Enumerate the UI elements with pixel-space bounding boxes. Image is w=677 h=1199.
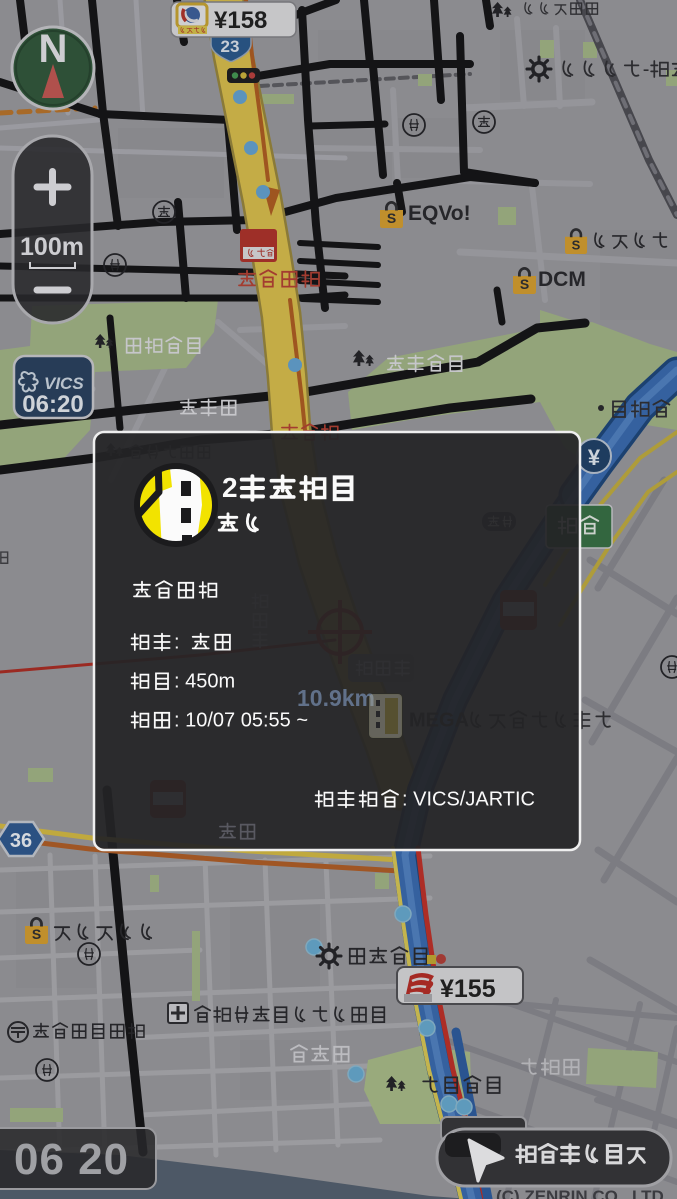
svg-text:S: S bbox=[32, 926, 41, 942]
svg-text:36: 36 bbox=[10, 830, 32, 852]
svg-text:06:20: 06:20 bbox=[22, 391, 83, 418]
svg-text:DCM: DCM bbox=[538, 268, 586, 291]
svg-text:: 450m: : 450m bbox=[174, 670, 235, 692]
svg-text:S: S bbox=[520, 276, 529, 292]
svg-text:¥: ¥ bbox=[588, 445, 601, 470]
svg-text:¥155: ¥155 bbox=[440, 975, 496, 1003]
svg-text:100m: 100m bbox=[20, 233, 84, 261]
svg-text:S: S bbox=[572, 237, 581, 252]
svg-text:S: S bbox=[387, 210, 396, 226]
svg-text:23: 23 bbox=[221, 37, 240, 56]
svg-text:2: 2 bbox=[222, 472, 238, 503]
svg-text:: 10/07 05:55 ~: : 10/07 05:55 ~ bbox=[174, 709, 308, 731]
svg-text:10.9km: 10.9km bbox=[297, 685, 375, 711]
svg-text:EQVo!: EQVo! bbox=[408, 202, 471, 225]
svg-text:06 20: 06 20 bbox=[14, 1135, 129, 1184]
svg-text:¥158: ¥158 bbox=[214, 7, 267, 34]
svg-text:(C) ZENRIN CO., LTD: (C) ZENRIN CO., LTD bbox=[496, 1187, 664, 1199]
svg-text:: VICS/JARTIC: : VICS/JARTIC bbox=[402, 788, 535, 810]
svg-text::: : bbox=[174, 631, 180, 653]
svg-text:-: - bbox=[643, 58, 650, 80]
